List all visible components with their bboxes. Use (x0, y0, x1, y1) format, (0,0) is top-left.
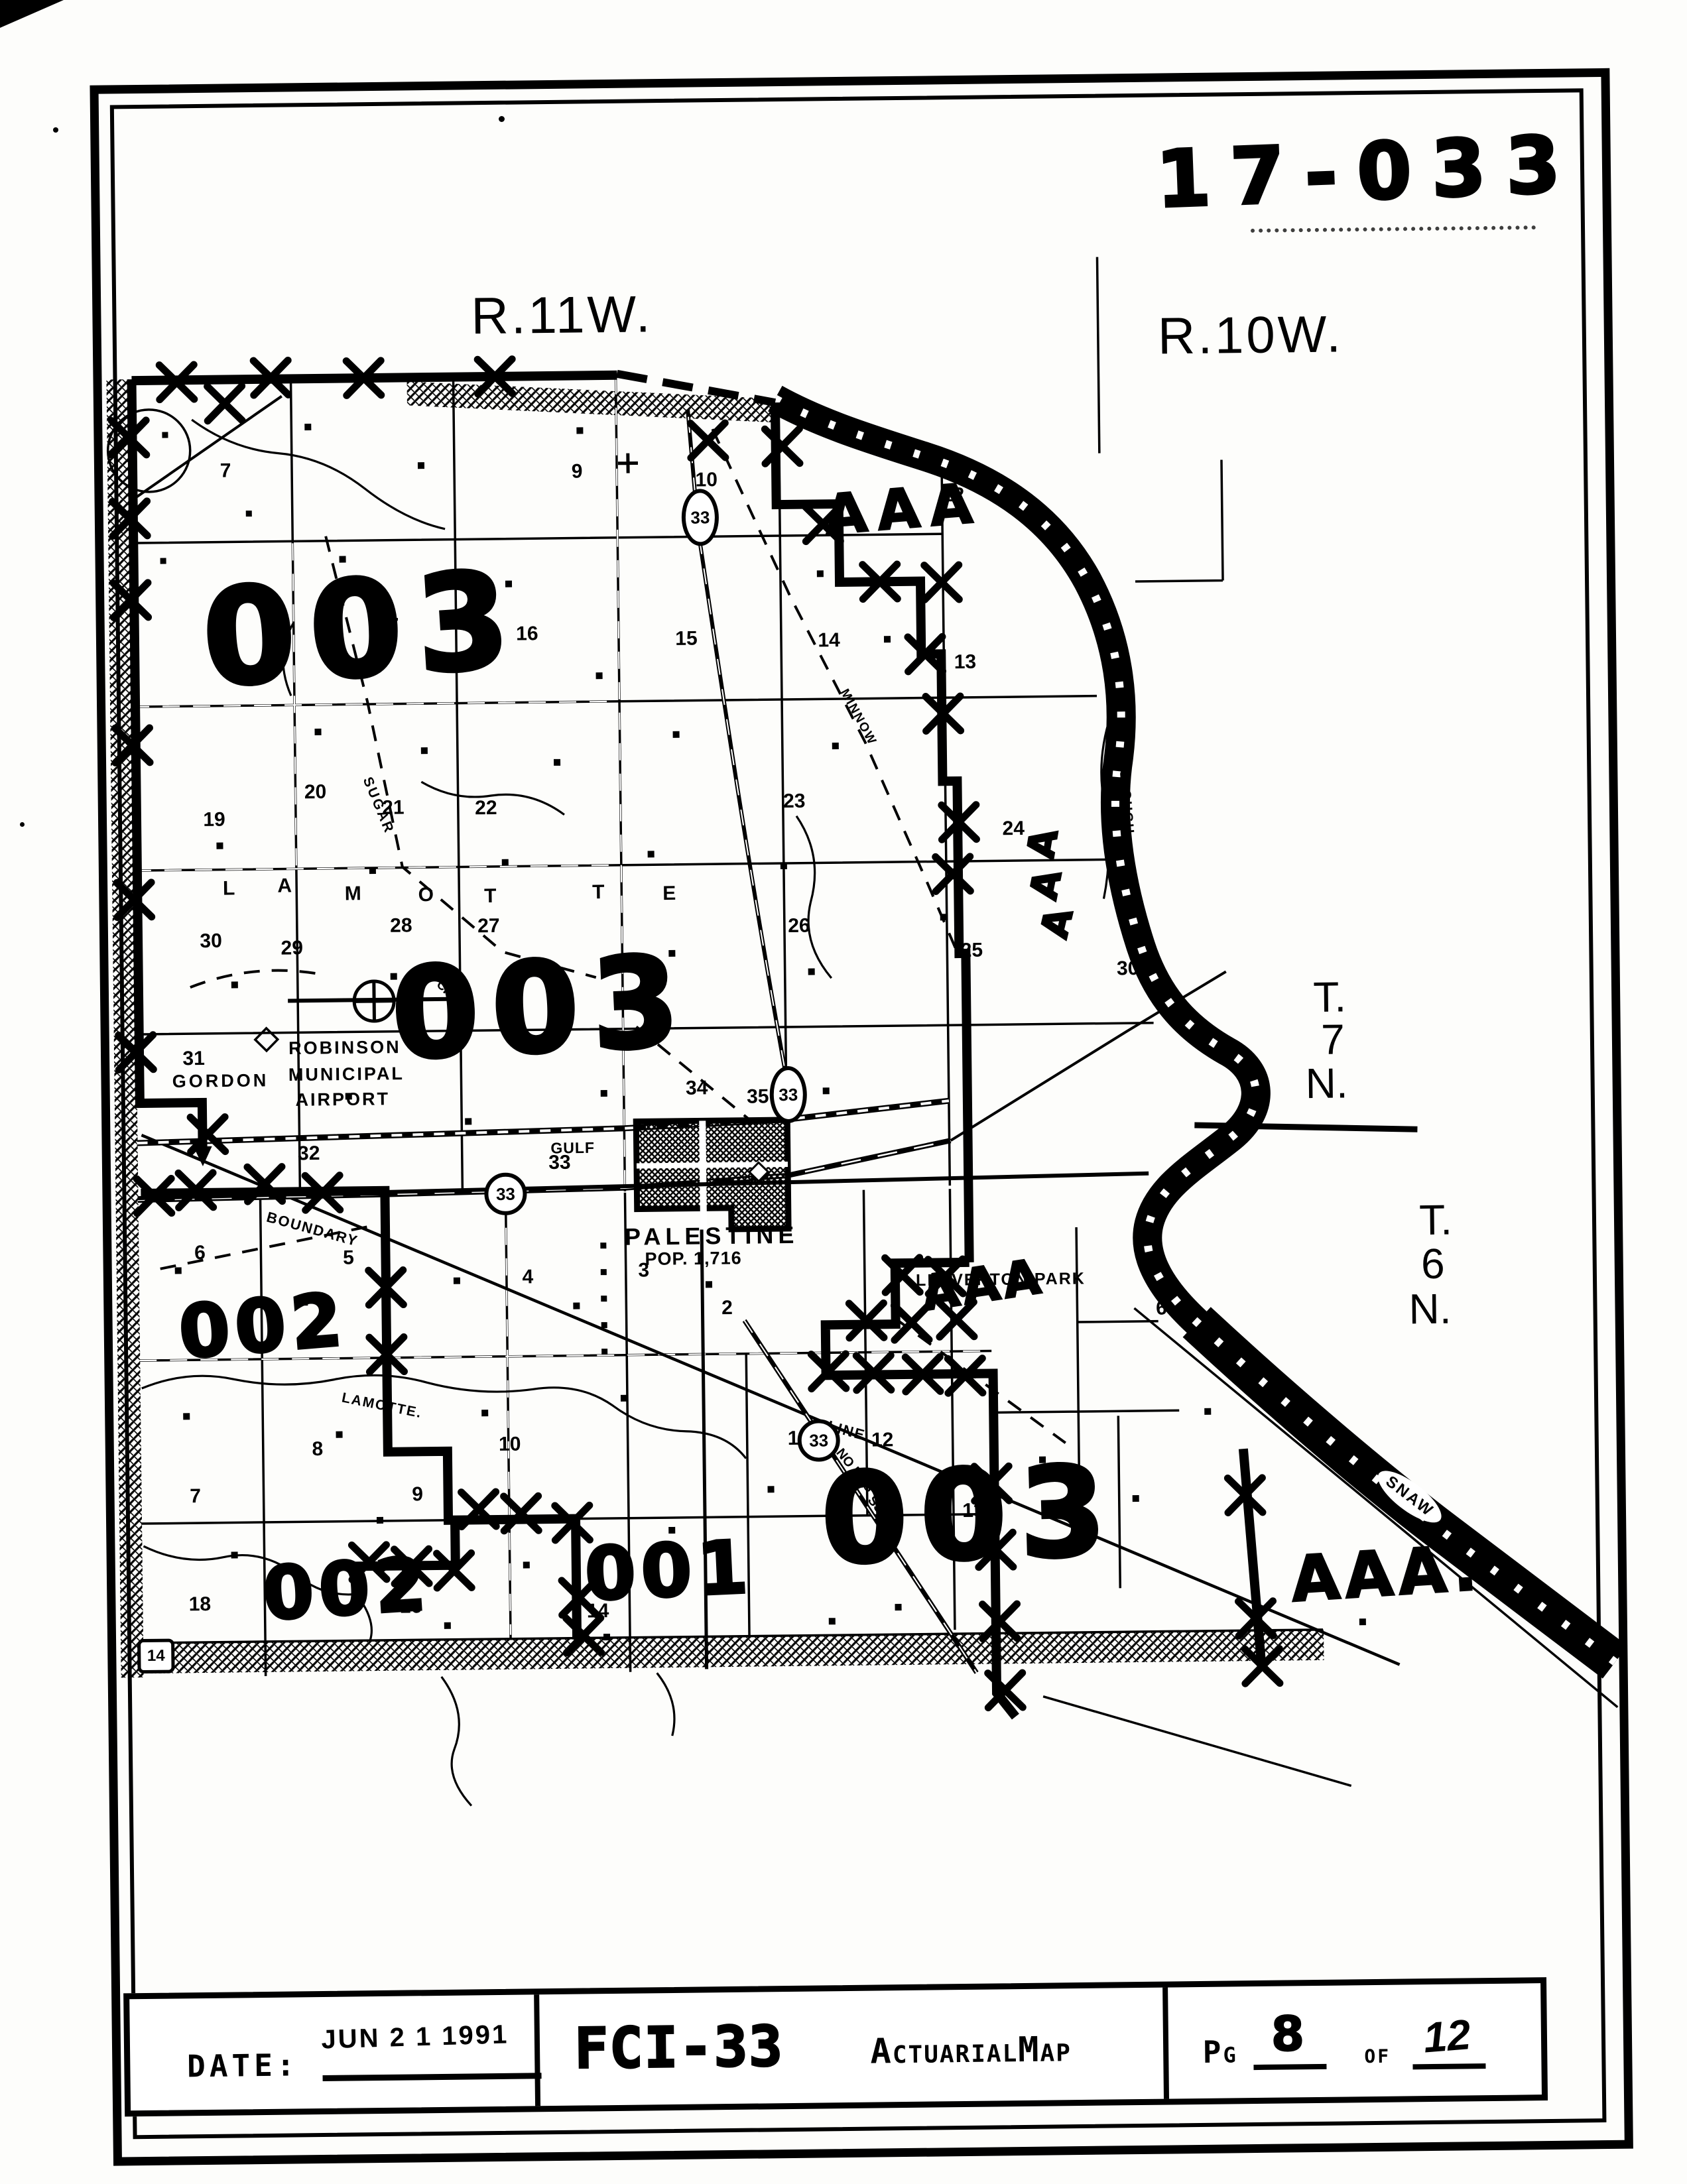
place-label: GORDON (172, 1071, 269, 1091)
place-label: ROBINSON (288, 1038, 401, 1058)
section-number: 7 (190, 1486, 201, 1506)
section-number: 6 (194, 1243, 206, 1263)
section-number: 13 (962, 1501, 985, 1521)
section-number: 22 (475, 798, 497, 818)
zone-number-003: 003 (199, 554, 527, 706)
section-number: 18 (189, 1595, 212, 1614)
zone-number: 002 (261, 1547, 433, 1631)
title-bar: DATE: JUN 2 1 1991 FCI-33 ActuarialMap P… (123, 1977, 1548, 2116)
section-number: 4 (522, 1267, 533, 1287)
section-number: 30 (200, 932, 222, 951)
section-number: 28 (390, 916, 412, 936)
zone-number: 002 (176, 1283, 350, 1369)
section-number: 34 (686, 1078, 708, 1098)
section-number: 14 (818, 631, 840, 650)
lamotte-township-letter: M (345, 884, 361, 904)
doc-code: FCI-33 (574, 2018, 784, 2077)
section-number: 24 (1002, 819, 1025, 839)
section-number: 26 (788, 916, 810, 936)
railroad (137, 1101, 949, 1143)
place-label: AIRPORT (295, 1090, 390, 1109)
date-underline (323, 2073, 542, 2081)
section-number: 10 (695, 470, 718, 490)
nw-diagonal (129, 396, 283, 502)
place-label: PALESTINE (625, 1223, 799, 1249)
doc-title: ActuarialMap (870, 2032, 1072, 2069)
section-number: 18 (211, 601, 233, 621)
lamotte-township-letter: E (662, 884, 676, 904)
section-number: 16 (516, 624, 538, 644)
page-total: 12 (1422, 2013, 1472, 2059)
page-label: Pg (1202, 2036, 1237, 2067)
lamotte-township-letter: A (277, 876, 292, 896)
title-cell: FCI-33 ActuarialMap (539, 1988, 1169, 2106)
section-number: 35 (747, 1087, 769, 1107)
section-number: 23 (783, 792, 806, 812)
range-label-r11w: R.11W. (471, 288, 653, 341)
river-direction-mark: A (1023, 827, 1064, 861)
section-number: 10 (499, 1435, 521, 1455)
section-number: 9 (412, 1485, 423, 1504)
route-33-shield: 33 (769, 1066, 807, 1124)
section-number: 5 (343, 1248, 354, 1268)
section-number: 15 (675, 629, 698, 648)
section-number: 14 (587, 1601, 609, 1621)
zone-aaa-mark: AAA. (1290, 1538, 1484, 1612)
map-linework (0, 0, 1687, 2184)
section-number: 27 (477, 916, 500, 936)
scanned-actuarial-map-sheet: 17-033 R.11W. R.10W. T.7N. T.6N. 0030030… (0, 0, 1687, 2184)
section-number: 12 (942, 485, 965, 505)
township-label-t7n: N. (1305, 1062, 1348, 1105)
page-number: 8 (1271, 2010, 1304, 2058)
place-label: LEAVERTON PARK (916, 1270, 1086, 1289)
county-road-14-marker: 14 (137, 1639, 175, 1674)
date-label: DATE: (187, 2049, 299, 2081)
range-label-r10w: R.10W. (1158, 308, 1344, 361)
section-number: 2 (721, 1298, 733, 1318)
cross-symbol (618, 453, 638, 473)
section-number: 32 (298, 1144, 320, 1164)
page-cell: Pg 8 of 12 (1168, 1983, 1542, 2098)
route-33-shield: 33 (681, 489, 719, 546)
section-number: 29 (281, 938, 303, 958)
section-number: 6 (1156, 1298, 1167, 1318)
page-underline (1253, 2064, 1326, 2070)
lamotte-township-letter: O (418, 885, 434, 905)
total-underline (1412, 2063, 1485, 2069)
section-number: 12 (871, 1430, 894, 1450)
section-number: 20 (304, 782, 327, 802)
section-number: 9 (572, 461, 583, 481)
zone-number: 001 (584, 1530, 755, 1611)
section-number: 19 (203, 810, 225, 830)
lamotte-township-letter: L (223, 879, 235, 898)
township-label-t6n: T. (1419, 1199, 1453, 1242)
section-number: 31 (182, 1049, 205, 1069)
of-label: of (1364, 2041, 1391, 2067)
route-33-shield: 33 (797, 1419, 840, 1462)
township-label-t7n: 7 (1321, 1018, 1345, 1060)
township-label-t7n: T. (1313, 975, 1347, 1018)
place-label: MUNICIPAL (288, 1065, 405, 1084)
lamotte-township-letter: T (592, 882, 605, 902)
date-cell: DATE: JUN 2 1 1991 (129, 1994, 540, 2110)
section-number: 16 (400, 1597, 422, 1616)
scan-content: 17-033 R.11W. R.10W. T.7N. T.6N. 0030030… (0, 0, 1687, 2184)
place-label: GULF (550, 1140, 595, 1156)
section-number: 30 (1117, 959, 1139, 979)
place-label: POP. 1,716 (645, 1249, 741, 1268)
map-id: 17-033 (1155, 125, 1581, 219)
section-number: 25 (960, 941, 983, 961)
palestine-town-block (636, 1120, 788, 1231)
date-stamp: JUN 2 1 1991 (321, 2021, 509, 2053)
section-number: 7 (220, 461, 231, 481)
township-label-t6n: 6 (1421, 1243, 1445, 1285)
section-number: 13 (954, 652, 977, 672)
section-number: 17 (377, 616, 399, 636)
section-number: 8 (312, 1439, 323, 1459)
lamotte-township-letter: T (484, 886, 497, 906)
zone-number-003: 003 (389, 940, 695, 1078)
township-label-t6n: N. (1408, 1288, 1452, 1331)
